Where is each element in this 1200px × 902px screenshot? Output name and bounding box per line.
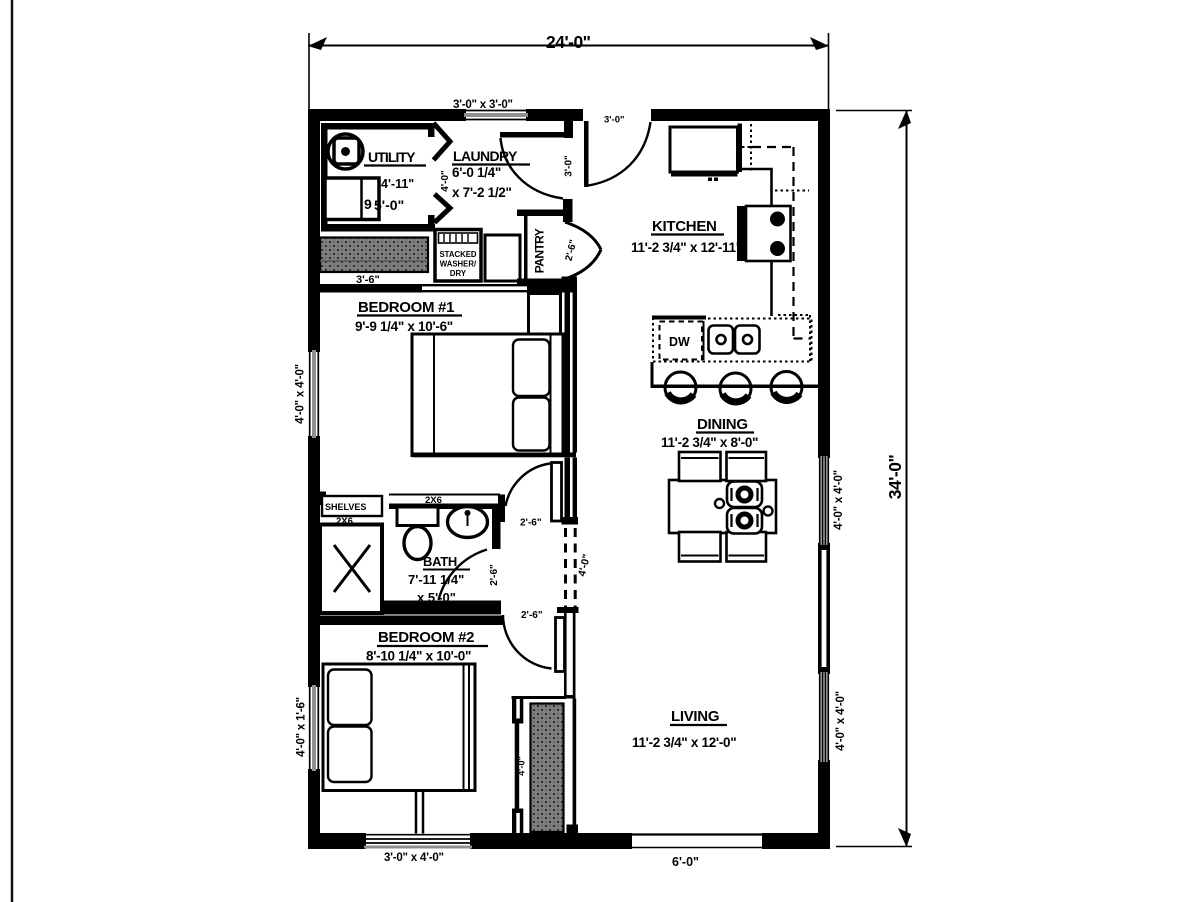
svg-text:11'-2 3/4" x 12'-11": 11'-2 3/4" x 12'-11"	[631, 240, 742, 255]
svg-text:34'-0": 34'-0"	[885, 455, 905, 500]
svg-text:2'-6": 2'-6"	[521, 610, 543, 621]
svg-text:24'-0": 24'-0"	[546, 32, 591, 52]
svg-text:STACKED: STACKED	[439, 250, 476, 259]
svg-text:SHELVES: SHELVES	[325, 502, 366, 512]
svg-text:KITCHEN: KITCHEN	[652, 218, 717, 235]
svg-text:6'-0": 6'-0"	[672, 855, 699, 869]
svg-text:2'-6": 2'-6"	[520, 518, 542, 529]
svg-text:BATH: BATH	[423, 554, 457, 569]
svg-text:11'-2 3/4" x 8'-0": 11'-2 3/4" x 8'-0"	[661, 435, 758, 450]
svg-text:DRY: DRY	[450, 269, 467, 278]
svg-text:5'-0": 5'-0"	[374, 197, 404, 213]
svg-text:PANTRY: PANTRY	[533, 228, 547, 273]
svg-text:4'-0" x 1'-6": 4'-0" x 1'-6"	[296, 697, 308, 757]
svg-text:DINING: DINING	[697, 416, 748, 433]
svg-text:BEDROOM #2: BEDROOM #2	[378, 629, 474, 646]
svg-text:4'-0" x 4'-0": 4'-0" x 4'-0"	[835, 691, 847, 751]
svg-text:LIVING: LIVING	[671, 708, 719, 725]
svg-text:6'-0 1/4": 6'-0 1/4"	[452, 165, 501, 180]
svg-text:3'-0": 3'-0"	[604, 115, 625, 126]
svg-text:x 7'-2 1/2": x 7'-2 1/2"	[452, 185, 512, 200]
svg-text:3'-0" x 4'-0": 3'-0" x 4'-0"	[384, 852, 444, 864]
svg-text:3'-0" x 3'-0": 3'-0" x 3'-0"	[453, 99, 513, 111]
svg-text:11'-2 3/4" x 12'-0": 11'-2 3/4" x 12'-0"	[632, 735, 736, 750]
svg-text:BEDROOM #1: BEDROOM #1	[358, 299, 454, 316]
svg-text:9: 9	[364, 196, 372, 212]
svg-text:8'-10 1/4" x 10'-0": 8'-10 1/4" x 10'-0"	[366, 649, 471, 664]
svg-text:4'-0": 4'-0"	[440, 170, 451, 192]
svg-text:4'-0" x 4'-0": 4'-0" x 4'-0"	[295, 364, 307, 424]
svg-text:DW: DW	[669, 335, 690, 349]
svg-text:4'-0": 4'-0"	[517, 756, 527, 775]
svg-text:3'-0": 3'-0"	[564, 155, 575, 177]
svg-text:9'-9 1/4" x 10'-6": 9'-9 1/4" x 10'-6"	[355, 319, 453, 334]
svg-text:4'-0" x 4'-0": 4'-0" x 4'-0"	[833, 470, 845, 530]
svg-text:7'-11 1/4": 7'-11 1/4"	[408, 572, 464, 587]
svg-text:4'-11": 4'-11"	[381, 177, 414, 191]
svg-text:2X6: 2X6	[425, 495, 442, 506]
svg-text:UTILITY: UTILITY	[368, 149, 416, 165]
svg-text:WASHER/: WASHER/	[440, 260, 477, 269]
svg-text:2'-6": 2'-6"	[489, 564, 500, 586]
